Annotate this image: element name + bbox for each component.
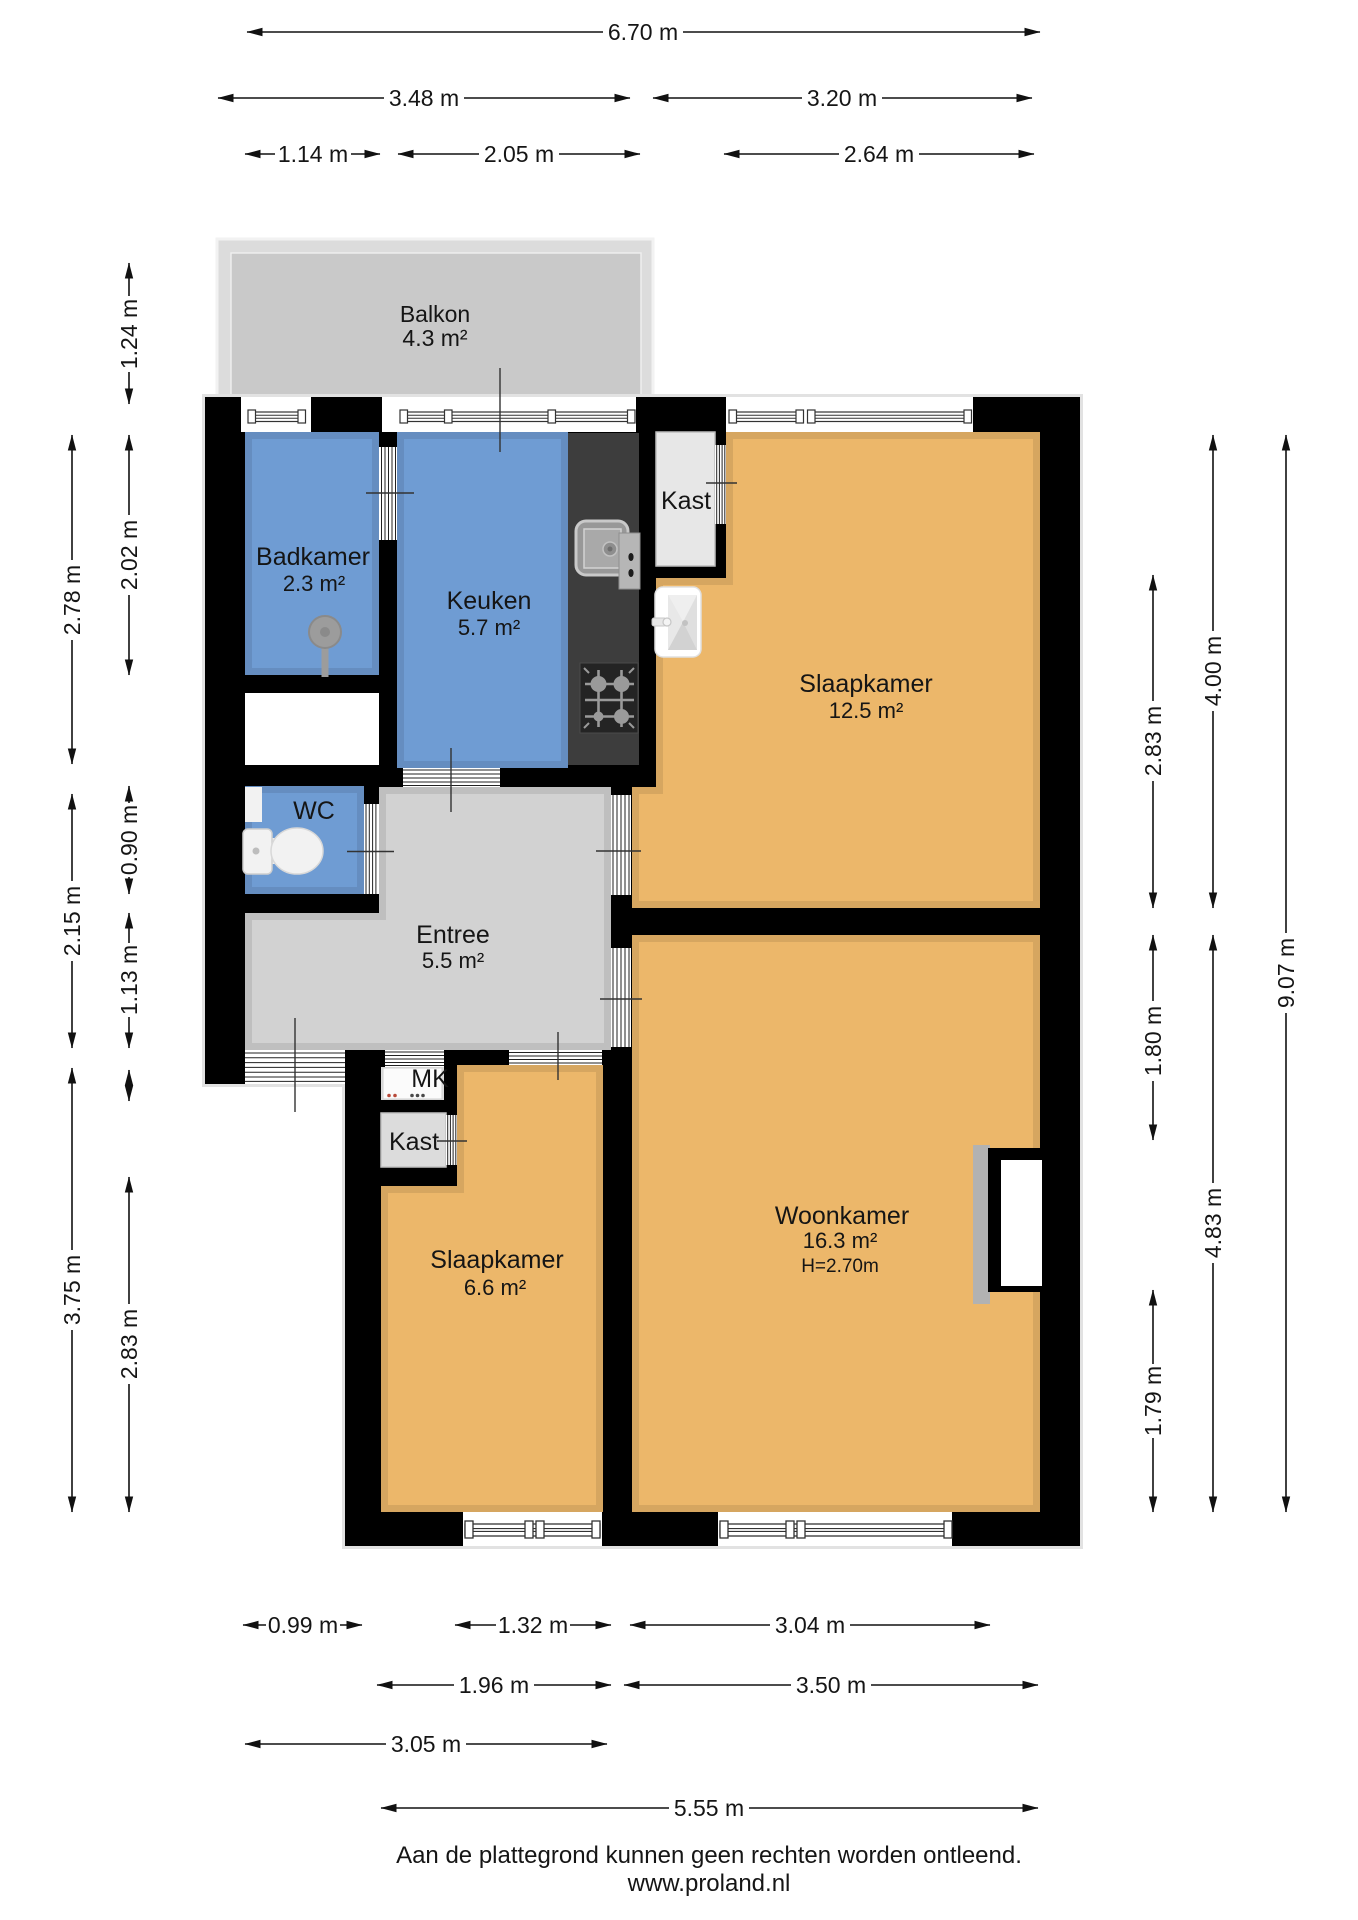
svg-text:Kast: Kast (661, 487, 711, 515)
svg-text:Woonkamer: Woonkamer (775, 1202, 909, 1230)
svg-text:Entree: Entree (416, 921, 490, 949)
svg-text:WC: WC (293, 797, 335, 825)
svg-text:2.78 m: 2.78 m (59, 565, 85, 635)
svg-text:2.3 m²: 2.3 m² (283, 571, 345, 596)
svg-text:Kast: Kast (389, 1128, 439, 1156)
svg-text:6.6 m²: 6.6 m² (464, 1275, 526, 1300)
svg-text:1.32 m: 1.32 m (498, 1612, 568, 1638)
svg-text:12.5 m²: 12.5 m² (829, 698, 904, 723)
svg-text:6.70 m: 6.70 m (608, 19, 678, 45)
svg-text:1.14 m: 1.14 m (278, 141, 348, 167)
svg-text:2.02 m: 2.02 m (116, 520, 142, 590)
svg-text:2.64 m: 2.64 m (844, 141, 914, 167)
svg-text:3.04 m: 3.04 m (775, 1612, 845, 1638)
svg-text:0.90 m: 0.90 m (116, 805, 142, 875)
svg-text:0.99 m: 0.99 m (268, 1612, 338, 1638)
svg-text:Slaapkamer: Slaapkamer (430, 1246, 563, 1274)
svg-text:2.83 m: 2.83 m (116, 1309, 142, 1379)
svg-text:Badkamer: Badkamer (256, 543, 370, 571)
svg-text:16.3 m²: 16.3 m² (803, 1228, 878, 1253)
svg-text:Keuken: Keuken (447, 587, 532, 615)
svg-text:1.24 m: 1.24 m (116, 299, 142, 369)
svg-text:H=2.70m: H=2.70m (801, 1256, 879, 1277)
svg-text:5.5 m²: 5.5 m² (422, 948, 484, 973)
svg-text:3.48 m: 3.48 m (389, 85, 459, 111)
svg-text:5.55 m: 5.55 m (674, 1795, 744, 1821)
svg-text:4.3 m²: 4.3 m² (402, 325, 468, 351)
svg-text:1.13 m: 1.13 m (116, 945, 142, 1015)
svg-text:Balkon: Balkon (400, 301, 470, 327)
svg-text:3.75 m: 3.75 m (59, 1255, 85, 1325)
svg-text:www.proland.nl: www.proland.nl (627, 1870, 791, 1897)
svg-text:3.20 m: 3.20 m (807, 85, 877, 111)
svg-text:MK: MK (411, 1065, 449, 1093)
svg-text:5.7 m²: 5.7 m² (458, 615, 520, 640)
svg-text:3.05 m: 3.05 m (391, 1731, 461, 1757)
svg-text:2.83 m: 2.83 m (1140, 706, 1166, 776)
svg-text:2.05 m: 2.05 m (484, 141, 554, 167)
svg-text:Aan de plattegrond kunnen geen: Aan de plattegrond kunnen geen rechten w… (396, 1842, 1022, 1869)
svg-text:1.80 m: 1.80 m (1140, 1006, 1166, 1076)
svg-text:4.83 m: 4.83 m (1200, 1188, 1226, 1258)
svg-text:9.07 m: 9.07 m (1273, 938, 1299, 1008)
svg-text:4.00 m: 4.00 m (1200, 636, 1226, 706)
svg-text:1.79 m: 1.79 m (1140, 1366, 1166, 1436)
svg-text:1.96 m: 1.96 m (459, 1672, 529, 1698)
svg-text:3.50 m: 3.50 m (796, 1672, 866, 1698)
svg-text:Slaapkamer: Slaapkamer (799, 670, 932, 698)
svg-text:2.15 m: 2.15 m (59, 886, 85, 956)
